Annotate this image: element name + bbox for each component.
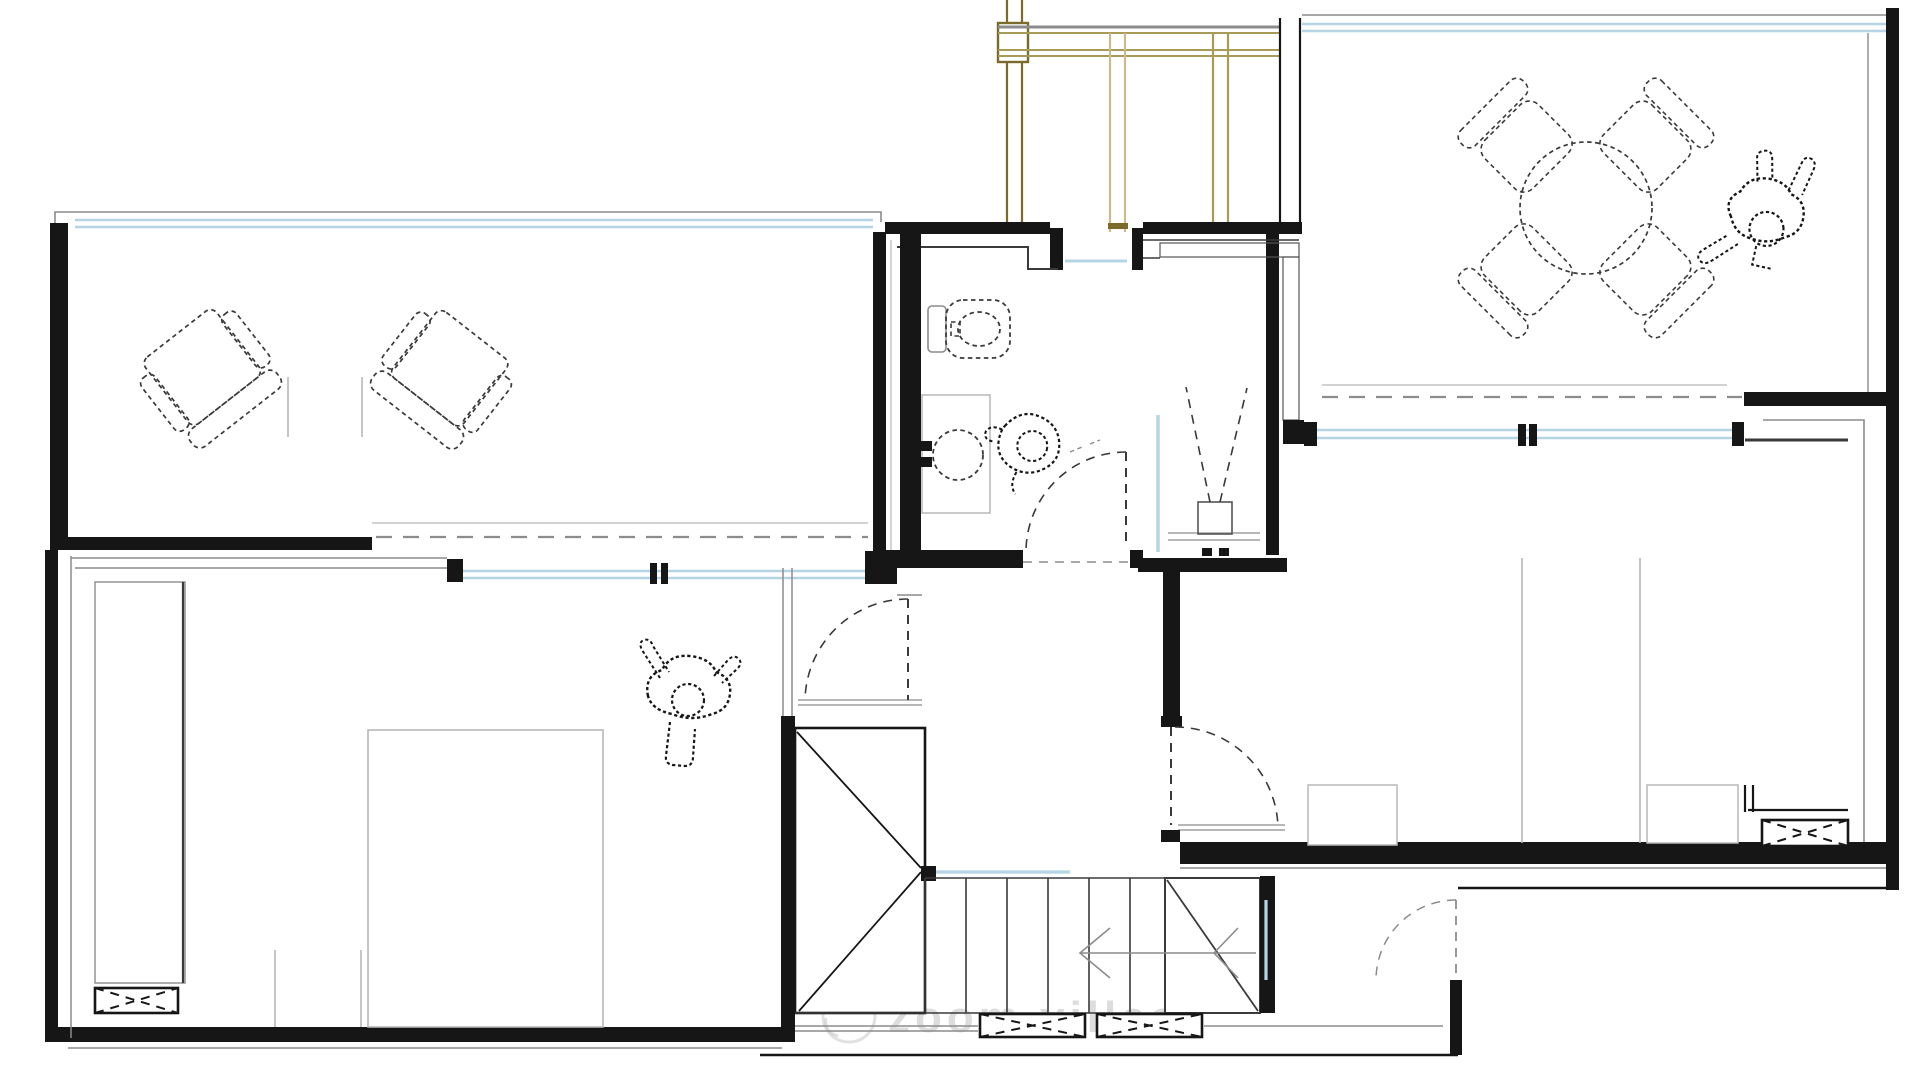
wall-south-bedroom (45, 1027, 795, 1042)
nightstand-2 (1647, 785, 1738, 843)
bath-east-wall (1266, 234, 1279, 555)
plant-terrace-south-wall (1138, 558, 1287, 572)
window-mullion-a (650, 563, 657, 584)
floor-plan-svg: zoom villas (0, 0, 1920, 1080)
terrace-west-wall (1280, 18, 1300, 232)
wardrobe-right-hatch (1750, 445, 1848, 810)
north-window-mullion-b (1529, 424, 1537, 446)
window-jamb-w (1304, 422, 1317, 446)
floor-plan-page: zoom villas (0, 0, 1920, 1080)
bath-north-wall-e (1143, 222, 1302, 234)
dining-chair-1 (1454, 74, 1581, 201)
door-swing-bath (1026, 452, 1126, 552)
door-jamb-bottom (1161, 830, 1180, 842)
bath-north-jamb-2 (1132, 228, 1143, 270)
door-threshold-bedroom (1178, 825, 1285, 830)
door-swing-living (805, 599, 908, 700)
bath-north-wall-w (885, 222, 1050, 234)
window-jamb-1 (447, 559, 463, 582)
dining-table-symbol (1520, 142, 1652, 274)
dining-chair-2 (1590, 74, 1717, 201)
wardrobe-right-bottom (1745, 785, 1848, 812)
dining-chair-3 (1454, 214, 1581, 341)
door-swing-bedroom (1175, 727, 1278, 827)
glazing-top-right (1302, 24, 1886, 31)
armchair-1 (129, 297, 289, 454)
potted-plant-symbol (1186, 387, 1247, 556)
bedroom-left (71, 551, 897, 1038)
dresser-x-box-right (1762, 820, 1848, 846)
wall-living-east (873, 232, 886, 553)
terrace-top-right (1280, 8, 1899, 395)
wall-ne (1744, 392, 1899, 406)
toilet-symbol (928, 300, 1010, 358)
window-jamb-stub (1283, 420, 1304, 444)
bathroom (880, 222, 1302, 568)
pergola-header-beams (998, 33, 1280, 56)
armchair-2 (363, 298, 523, 455)
bath-west-wall (900, 234, 921, 555)
vent-box-2 (1097, 1014, 1202, 1037)
person-figure-desk (640, 640, 740, 766)
bath-bulkhead-lines (897, 247, 1058, 272)
partition-hall (1163, 572, 1180, 716)
dining-chair-4 (1590, 214, 1717, 341)
stair-flight-upper (795, 728, 925, 1013)
pergola (998, 0, 1280, 232)
bed-left (368, 730, 603, 1027)
dining-set (1454, 74, 1717, 341)
bath-south-wall-w (880, 550, 1023, 568)
watermark-logo-detail (826, 1018, 838, 1036)
window-mullion-b (661, 563, 668, 584)
north-window-mullion-a (1518, 424, 1526, 446)
washbasin-symbol (920, 395, 990, 513)
door-jamb-top (1161, 716, 1182, 727)
stair-west-wall (781, 716, 795, 1030)
bath-north-jamb-1 (1050, 228, 1063, 270)
wall-west-upper (50, 223, 68, 537)
terrace-top-left (55, 212, 881, 537)
terrace-edge-line (55, 212, 881, 256)
side-table (288, 377, 362, 437)
terrace-east-wall (1886, 8, 1899, 395)
bed-lines-right (1522, 558, 1640, 843)
wardrobe-left (95, 582, 185, 983)
wall-east (1886, 395, 1899, 890)
bedside-lines (275, 950, 361, 1027)
glazing-top-left (75, 220, 873, 227)
sketch-marks (1070, 440, 1100, 452)
pergola-beam-b (1110, 33, 1125, 232)
vent-box-1 (980, 1014, 1085, 1037)
inner-face-ne (1763, 420, 1864, 843)
pergola-beam-c (1213, 33, 1228, 232)
hall-threshold (798, 700, 922, 705)
plant-terrace (1138, 240, 1304, 572)
person-figure-terrace (1688, 146, 1825, 276)
door-exterior-small (1376, 900, 1462, 1055)
nightstand-1 (1308, 785, 1397, 845)
wall-west-lower (45, 550, 58, 1042)
wall-hatch-vertical (1283, 257, 1299, 420)
window-jamb-e (1732, 422, 1744, 446)
wall-living-south (50, 537, 372, 550)
dresser-x-box-left (95, 988, 178, 1013)
